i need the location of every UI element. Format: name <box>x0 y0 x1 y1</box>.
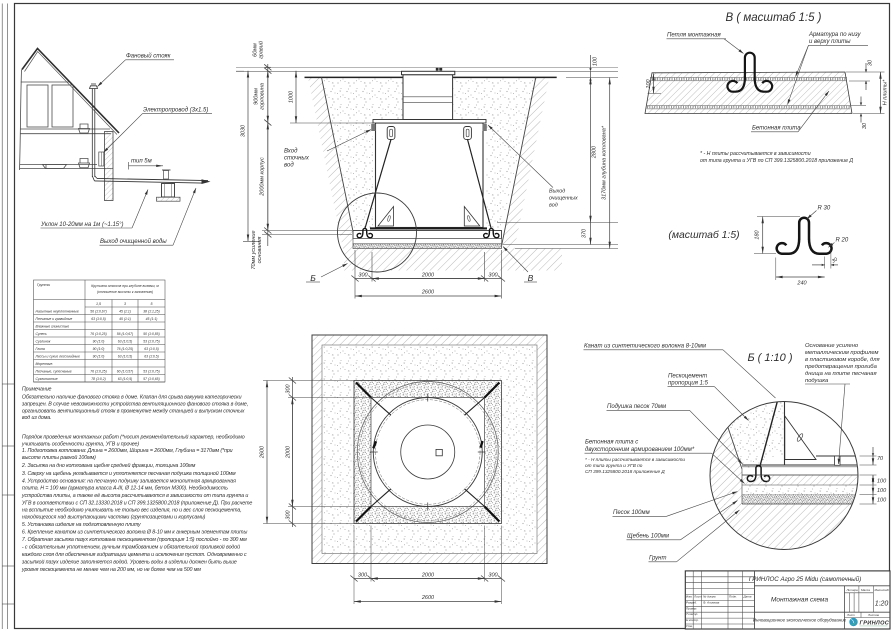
svg-text:Б ( 1:10 ): Б ( 1:10 ) <box>747 352 792 364</box>
svg-text:(отношение высоты к заложению): (отношение высоты к заложению) <box>97 290 153 294</box>
svg-text:каждого слоя для обеспечения г: каждого слоя для обеспечения гидратации … <box>22 552 247 558</box>
svg-text:90 (1:0): 90 (1:0) <box>93 339 105 343</box>
svg-text:R 30: R 30 <box>818 206 831 212</box>
svg-text:300: 300 <box>488 273 498 279</box>
svg-text:63 (1:0,5): 63 (1:0,5) <box>91 317 106 321</box>
svg-text:днища на плите песчаная: днища на плите песчаная <box>805 371 877 377</box>
svg-text:Утв.: Утв. <box>686 624 693 628</box>
svg-text:50 (1:0,85): 50 (1:0,85) <box>143 332 159 336</box>
svg-text:Песок 100мм: Песок 100мм <box>613 510 650 516</box>
svg-text:300: 300 <box>358 573 368 579</box>
svg-text:63 (1:0,5): 63 (1:0,5) <box>118 377 133 381</box>
svg-text:Лист: Лист <box>693 595 702 599</box>
svg-text:57 (1:0,65): 57 (1:0,65) <box>143 377 159 381</box>
svg-text:Подп.: Подп. <box>729 595 737 599</box>
svg-text:* - Н плиты рассчитывается в з: * - Н плиты рассчитывается в зависимости <box>585 457 685 462</box>
svg-text:60 (1:0,57): 60 (1:0,57) <box>117 369 133 373</box>
svg-text:30: 30 <box>862 122 868 129</box>
svg-text:1,5: 1,5 <box>96 302 101 306</box>
svg-text:63 (1:0,5): 63 (1:0,5) <box>118 339 133 343</box>
svg-text:В ( масштаб 1:5 ): В ( масштаб 1:5 ) <box>726 12 822 24</box>
svg-text:Лессы и сухие лессовидные: Лессы и сухие лессовидные <box>35 354 81 358</box>
svg-text:предотвращения прогиба: предотвращения прогиба <box>805 364 878 370</box>
svg-text:на всплытие необходимо учитыв: на всплытие необходимо учитывать не толь… <box>22 508 242 514</box>
svg-text:Лист: Лист <box>846 613 855 617</box>
svg-text:ГРИНЛОС Агро 25 Midu (самотечн: ГРИНЛОС Агро 25 Midu (самотечный) <box>749 576 861 583</box>
svg-text:устройства плиты, а также её в: устройства плиты, а также её высота расс… <box>21 492 248 499</box>
svg-text:гравий: гравий <box>258 41 265 59</box>
svg-text:Б: Б <box>310 273 316 283</box>
svg-text:вод из дома.: вод из дома. <box>22 415 52 421</box>
svg-text:Н плиты*: Н плиты* <box>883 79 889 105</box>
svg-text:300: 300 <box>286 383 292 393</box>
svg-text:учитывать особенности грунта,: учитывать особенности грунта, УГВ и проч… <box>21 441 140 447</box>
svg-text:1:20: 1:20 <box>875 601 889 608</box>
svg-text:56 (1:0,67): 56 (1:0,67) <box>117 332 133 336</box>
svg-text:Песчаные и гравийные: Песчаные и гравийные <box>36 317 73 321</box>
svg-text:Литера: Литера <box>846 588 859 592</box>
svg-text:2600: 2600 <box>421 595 435 601</box>
svg-text:63 (1:0,5): 63 (1:0,5) <box>118 354 133 358</box>
svg-text:38 (1:1,25): 38 (1:1,25) <box>143 309 159 313</box>
svg-text:1000: 1000 <box>289 90 295 103</box>
svg-text:76 (1:0,25): 76 (1:0,25) <box>117 347 133 351</box>
svg-text:300: 300 <box>286 509 292 519</box>
svg-text:Песчаные, супесчаные: Песчаные, супесчаные <box>36 369 72 373</box>
svg-text:от типа грунта и УГВ по: от типа грунта и УГВ по <box>585 463 643 468</box>
svg-text:В: В <box>528 273 534 283</box>
svg-text:подушка: подушка <box>805 378 829 384</box>
svg-text:находящегося над выступающими: находящегося над выступающими частями (г… <box>22 515 206 521</box>
svg-text:53 (1:0,75): 53 (1:0,75) <box>143 339 159 343</box>
svg-text:2000: 2000 <box>421 573 435 579</box>
svg-text:3. Сверху на щебень укладывает: 3. Сверху на щебень укладывается и уплот… <box>22 470 236 477</box>
svg-text:2600: 2600 <box>260 445 266 459</box>
svg-text:78 (1:0,2): 78 (1:0,2) <box>91 377 106 381</box>
svg-text:2000: 2000 <box>421 273 435 279</box>
svg-text:7. Обратная засыпка пазух котл: 7. Обратная засыпка пазух котлована песк… <box>22 536 247 543</box>
svg-text:Бетонная плита с: Бетонная плита с <box>585 440 638 446</box>
svg-text:Щебень 100мм: Щебень 100мм <box>627 534 669 540</box>
svg-text:вод: вод <box>549 203 558 209</box>
svg-text:2. Засыпка на дно котлована ще: 2. Засыпка на дно котлована щебня средне… <box>21 462 196 469</box>
svg-text:Масса: Масса <box>861 588 870 592</box>
svg-text:70: 70 <box>877 456 884 462</box>
svg-text:100: 100 <box>646 78 652 88</box>
svg-text:Арматура по низу: Арматура по низу <box>808 32 861 38</box>
svg-text:Грунт: Грунт <box>649 556 666 562</box>
svg-text:1. Подготовка котлована: Длина: 1. Подготовка котлована: Длина = 2600мм,… <box>22 448 233 454</box>
svg-text:Основание усилено: Основание усилено <box>805 343 859 349</box>
svg-text:(масштаб 1:5): (масштаб 1:5) <box>668 229 739 241</box>
svg-text:Фановый стояк: Фановый стояк <box>126 53 172 60</box>
svg-text:45 (1:1): 45 (1:1) <box>119 317 131 321</box>
svg-text:СП 399.1325800.2018 приложение: СП 399.1325800.2018 приложение Д <box>585 469 665 474</box>
svg-text:Насыпные неуплотненные: Насыпные неуплотненные <box>36 309 79 313</box>
svg-text:уровня пескоцемента не менее ч: уровня пескоцемента не менее чем на 200 … <box>21 567 201 573</box>
svg-text:Бетонная плита: Бетонная плита <box>752 126 801 132</box>
svg-text:4. Устройство основания: на пе: 4. Устройство основания: на песчаную под… <box>22 477 236 484</box>
svg-text:Выход очищенной воды: Выход очищенной воды <box>100 238 167 245</box>
svg-text:ГРИНЛОС: ГРИНЛОС <box>860 620 890 626</box>
svg-text:Влажные глинистые: Влажные глинистые <box>36 324 70 328</box>
svg-text:Подушка песок 70мм: Подушка песок 70мм <box>607 404 666 410</box>
svg-text:Электропровод (3х1.5): Электропровод (3х1.5) <box>143 108 208 114</box>
svg-text:Суглинистые: Суглинистые <box>36 377 58 381</box>
svg-text:Ф. Алимова: Ф. Алимова <box>703 600 720 604</box>
svg-text:370: 370 <box>582 228 588 238</box>
svg-text:организовать вентиляционный ст: организовать вентиляционный стояк в пром… <box>22 407 245 414</box>
svg-text:240: 240 <box>796 281 807 287</box>
svg-text:пропорция 1:5: пропорция 1:5 <box>668 381 709 387</box>
svg-text:Порядок проведения монтажных р: Порядок проведения монтажных работ (*нос… <box>22 434 245 441</box>
svg-text:90 (1:0): 90 (1:0) <box>93 347 105 351</box>
svg-text:100: 100 <box>593 56 599 66</box>
svg-text:76 (1:0,25): 76 (1:0,25) <box>90 369 106 373</box>
svg-text:плита. Н = 100 мм (арматура кл: плита. Н = 100 мм (арматура класса А-III… <box>22 486 228 492</box>
svg-text:горловина: горловина <box>260 83 266 110</box>
svg-text:100: 100 <box>877 479 887 485</box>
svg-text:5: 5 <box>151 302 153 306</box>
svg-text:* - Н плиты рассчитывается в з: * - Н плиты рассчитывается в зависимости <box>700 151 811 157</box>
svg-text:Изм.: Изм. <box>686 595 693 599</box>
svg-text:от типа грунта и УГВ по СП 399: от типа грунта и УГВ по СП 399.1325800.2… <box>700 158 853 164</box>
svg-text:Листов: Листов <box>867 613 879 617</box>
svg-text:300: 300 <box>488 573 498 579</box>
svg-text:90 (1:0): 90 (1:0) <box>93 354 105 358</box>
svg-text:6. Крепление канатом из синтет: 6. Крепление канатом из синтетического в… <box>22 530 248 536</box>
svg-text:63 (1:0,5): 63 (1:0,5) <box>144 354 159 358</box>
svg-text:Канат из синтетического волокн: Канат из синтетического волокна 8-10мм <box>584 344 706 350</box>
svg-text:Грунты: Грунты <box>37 283 50 287</box>
svg-text:Уклон 10-20мм на 1м (~1.15°): Уклон 10-20мм на 1м (~1.15°) <box>40 222 124 228</box>
svg-text:5. Установка изделия на подгот: 5. Установка изделия на подготовленную п… <box>22 522 141 528</box>
svg-text:R 20: R 20 <box>836 238 849 244</box>
svg-text:Супесь: Супесь <box>36 332 48 336</box>
svg-text:63 (1:0,5): 63 (1:0,5) <box>144 347 159 351</box>
svg-text:Крутизна откосов при глубине в: Крутизна откосов при глубине выемки, м <box>91 284 159 288</box>
svg-text:2000мм корпус: 2000мм корпус <box>260 157 266 197</box>
svg-text:Н.контр.: Н.контр. <box>686 618 699 622</box>
svg-text:Т.контр.: Т.контр. <box>686 612 698 616</box>
svg-text:металлическим профилем: металлическим профилем <box>805 350 879 356</box>
svg-text:Вход: Вход <box>284 149 298 155</box>
svg-text:2800: 2800 <box>592 145 598 159</box>
svg-text:в пластиковом коробе, для: в пластиковом коробе, для <box>805 357 880 363</box>
svg-text:56 (1:0,67): 56 (1:0,67) <box>90 309 106 313</box>
svg-text:высоте плиты равной 100мм): высоте плиты равной 100мм) <box>22 454 96 461</box>
svg-text:засыпкой пазух изделие заполня: засыпкой пазух изделие заполняется водой… <box>21 558 237 565</box>
svg-text:100: 100 <box>877 498 887 504</box>
svg-text:2600: 2600 <box>421 290 435 296</box>
svg-text:3: 3 <box>124 302 126 306</box>
svg-text:Петля монтажная: Петля монтажная <box>667 33 722 39</box>
svg-text:Дата: Дата <box>743 595 752 599</box>
svg-text:основания: основания <box>257 237 263 264</box>
svg-text:45 (1:1): 45 (1:1) <box>119 309 131 313</box>
svg-text:сточных: сточных <box>284 156 310 162</box>
svg-text:2000: 2000 <box>286 445 292 459</box>
svg-text:53 (1:0,75): 53 (1:0,75) <box>143 369 159 373</box>
svg-text:100: 100 <box>877 488 887 494</box>
svg-text:180: 180 <box>755 229 761 239</box>
svg-text:Моренные:: Моренные: <box>36 362 54 366</box>
svg-text:№ докум.: № докум. <box>703 595 716 599</box>
svg-text:76 (1:0,25): 76 (1:0,25) <box>90 332 106 336</box>
svg-text:Провер.: Провер. <box>686 606 697 610</box>
svg-text:Разраб.: Разраб. <box>686 600 697 604</box>
svg-text:300: 300 <box>358 273 368 279</box>
svg-text:30: 30 <box>868 59 874 66</box>
svg-text:двухсторонним армированием 100: двухсторонним армированием 100мм* <box>585 447 695 453</box>
svg-text:45 (1:1): 45 (1:1) <box>146 317 158 321</box>
svg-text:Выход: Выход <box>549 189 565 195</box>
svg-text:и верху плиты: и верху плиты <box>809 39 851 45</box>
svg-text:3030: 3030 <box>241 124 247 137</box>
svg-text:Обязательно наличие фанового с: Обязательно наличие фанового стояка в до… <box>22 395 242 401</box>
svg-text:Суглинок: Суглинок <box>36 339 51 343</box>
svg-text:Примечание: Примечание <box>22 387 52 393</box>
svg-text:Глина: Глина <box>36 347 45 351</box>
svg-text:Масштаб: Масштаб <box>875 588 889 592</box>
svg-text:вод: вод <box>284 163 294 169</box>
svg-text:очищенных: очищенных <box>549 196 578 202</box>
svg-text:Инновационное экологическое об: Инновационное экологическое оборудование <box>753 618 847 623</box>
svg-text:УГВ в соответствии с СП 32.133: УГВ в соответствии с СП 32.13330.2018 и … <box>22 500 253 506</box>
svg-text:Пескоцемент: Пескоцемент <box>668 374 707 380</box>
svg-text:- с обязательным уплотнением,: - с обязательным уплотнением, ручным тра… <box>22 544 240 551</box>
svg-text:Монтажная схема: Монтажная схема <box>771 597 829 604</box>
svg-text:запрещен. В случае невозможнос: запрещен. В случае невозможности устройс… <box>21 400 248 407</box>
svg-text:тип 5м: тип 5м <box>131 159 152 165</box>
svg-text:3170мм глубина котлована*: 3170мм глубина котлована* <box>602 125 608 200</box>
